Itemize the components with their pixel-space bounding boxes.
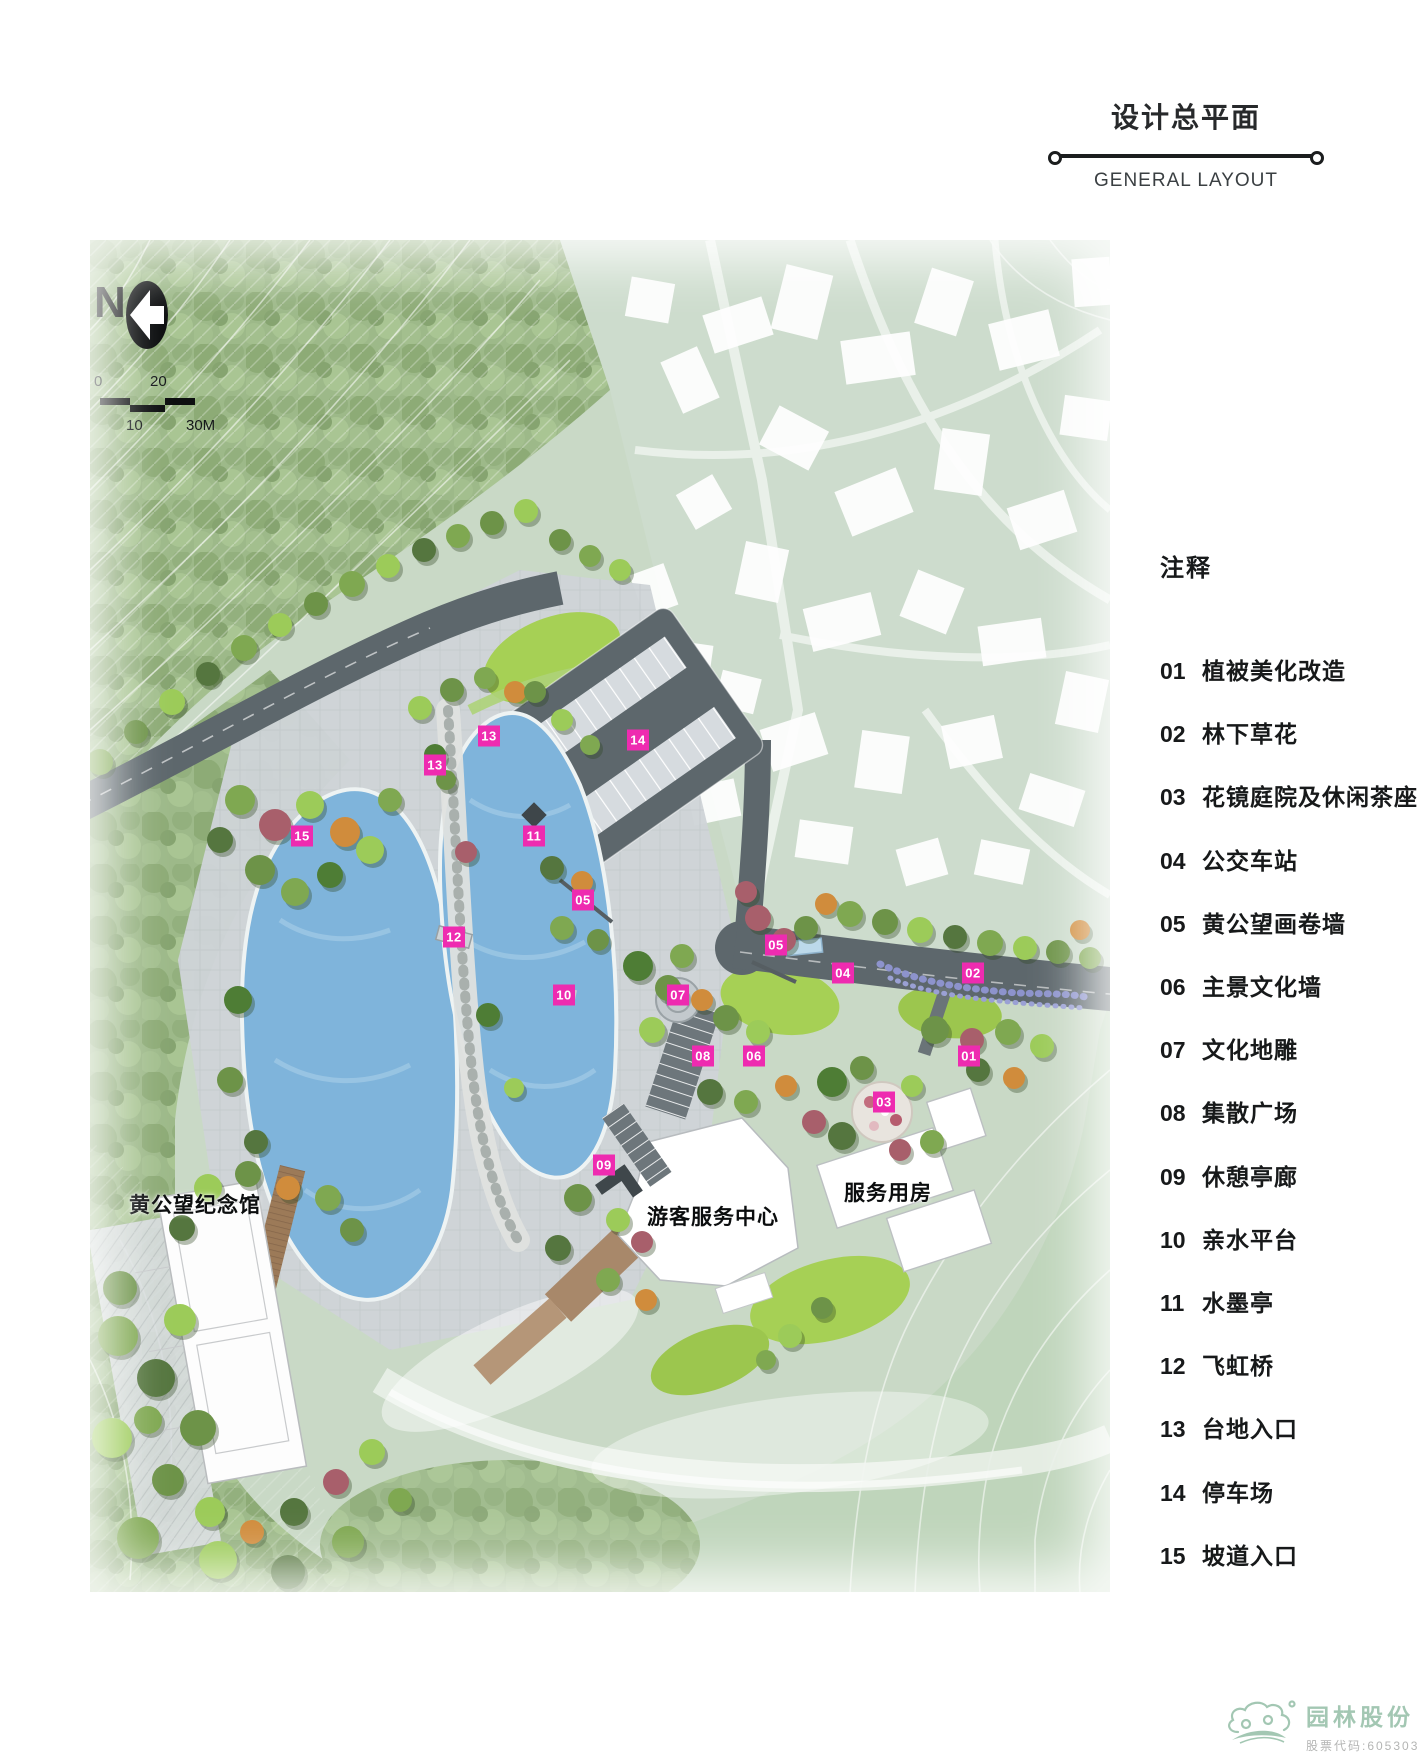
rule-right-ring-icon — [1310, 151, 1324, 165]
legend-item-number: 03 — [1160, 784, 1202, 811]
legend-heading: 注释 — [1160, 548, 1410, 583]
legend-item-number: 06 — [1160, 974, 1202, 1001]
legend-item-08: 08集散广场 — [1160, 1094, 1298, 1128]
legend-item-13: 13台地入口 — [1160, 1410, 1298, 1444]
legend-item-label: 集散广场 — [1202, 1094, 1298, 1128]
plan-marker-14: 14 — [627, 730, 649, 751]
legend-item-number: 05 — [1160, 911, 1202, 938]
plan-marker-07: 07 — [667, 985, 689, 1006]
plan-marker-05: 05 — [572, 890, 594, 911]
legend-item-number: 07 — [1160, 1037, 1202, 1064]
scale-label-10: 10 — [126, 417, 143, 434]
plan-marker-02: 02 — [962, 963, 984, 984]
legend-item-number: 04 — [1160, 848, 1202, 875]
legend-item-label: 黄公望画卷墙 — [1202, 905, 1346, 939]
legend-item-number: 10 — [1160, 1227, 1202, 1254]
legend-item-12: 12飞虹桥 — [1160, 1347, 1274, 1381]
plan-marker-08: 08 — [692, 1046, 714, 1067]
legend-item-06: 06主景文化墙 — [1160, 968, 1322, 1002]
company-name: 园林股份 — [1306, 1698, 1419, 1732]
legend-item-number: 15 — [1160, 1543, 1202, 1570]
scale-label-20: 20 — [150, 373, 167, 390]
legend-item-number: 01 — [1160, 658, 1202, 685]
page-title: 设计总平面 — [1048, 96, 1324, 136]
plan-marker-11: 11 — [523, 826, 545, 847]
place-label: 黄公望纪念馆 — [129, 1189, 261, 1219]
legend-item-number: 12 — [1160, 1353, 1202, 1380]
plan-marker-10: 10 — [553, 985, 575, 1006]
page-header: 设计总平面 GENERAL LAYOUT — [1048, 96, 1324, 192]
legend-item-number: 02 — [1160, 721, 1202, 748]
legend-item-10: 10亲水平台 — [1160, 1221, 1298, 1255]
rule-bar — [1060, 154, 1312, 158]
legend-item-label: 花镜庭院及休闲茶座 — [1202, 778, 1418, 812]
legend-item-07: 07文化地雕 — [1160, 1031, 1298, 1065]
legend-item-label: 植被美化改造 — [1202, 652, 1346, 686]
plan-marker-05: 05 — [765, 935, 787, 956]
company-logo: 园林股份 股票代码:605303 — [1224, 1698, 1419, 1754]
legend-item-15: 15坡道入口 — [1160, 1537, 1298, 1571]
legend-item-02: 02林下草花 — [1160, 715, 1298, 749]
plan-marker-06: 06 — [743, 1046, 765, 1067]
legend-item-label: 公交车站 — [1202, 842, 1298, 876]
legend-item-11: 11水墨亭 — [1160, 1284, 1274, 1318]
plan-marker-09: 09 — [593, 1155, 615, 1176]
legend-item-label: 台地入口 — [1202, 1410, 1298, 1444]
plan-marker-13: 13 — [424, 755, 446, 776]
place-label: 服务用房 — [844, 1177, 932, 1207]
title-rule — [1048, 150, 1324, 162]
plan-marker-03: 03 — [873, 1092, 895, 1113]
plan-marker-04: 04 — [832, 963, 854, 984]
plan-marker-13: 13 — [478, 726, 500, 747]
plan-marker-12: 12 — [443, 927, 465, 948]
scale-label-0: 0 — [94, 373, 102, 390]
site-plan-graphic — [90, 240, 1110, 1592]
plan-marker-15: 15 — [291, 826, 313, 847]
legend-item-number: 09 — [1160, 1164, 1202, 1191]
legend-item-label: 主景文化墙 — [1202, 968, 1322, 1002]
legend-item-14: 14停车场 — [1160, 1474, 1274, 1508]
legend-item-number: 13 — [1160, 1416, 1202, 1443]
scale-bar-seg1 — [100, 398, 130, 405]
legend-item-04: 04公交车站 — [1160, 842, 1298, 876]
plan-marker-01: 01 — [958, 1046, 980, 1067]
legend-item-label: 飞虹桥 — [1202, 1347, 1274, 1381]
page-subtitle: GENERAL LAYOUT — [1048, 170, 1324, 192]
scale-bar-seg2 — [130, 405, 165, 412]
legend-item-label: 休憩亭廊 — [1202, 1158, 1298, 1192]
legend-item-label: 亲水平台 — [1202, 1221, 1298, 1255]
legend-item-label: 坡道入口 — [1202, 1537, 1298, 1571]
cloud-logo-icon — [1224, 1698, 1300, 1748]
legend-item-number: 14 — [1160, 1480, 1202, 1507]
legend-item-label: 水墨亭 — [1202, 1284, 1274, 1318]
site-plan-map: N 0 20 10 30M 黄公望纪念馆游客服务中心服务用房 131413111… — [90, 240, 1110, 1592]
scale-bar-seg3 — [165, 398, 195, 405]
legend-item-05: 05黄公望画卷墙 — [1160, 905, 1346, 939]
legend-item-label: 林下草花 — [1202, 715, 1298, 749]
place-label: 游客服务中心 — [647, 1201, 779, 1231]
legend-item-03: 03花镜庭院及休闲茶座 — [1160, 778, 1418, 812]
legend-item-01: 01植被美化改造 — [1160, 652, 1346, 686]
legend-item-number: 11 — [1160, 1290, 1202, 1317]
legend-item-number: 08 — [1160, 1100, 1202, 1127]
stock-code: 股票代码:605303 — [1306, 1737, 1419, 1754]
legend: 注释 01植被美化改造02林下草花03花镜庭院及休闲茶座04公交车站05黄公望画… — [1160, 548, 1410, 583]
legend-item-09: 09休憩亭廊 — [1160, 1158, 1298, 1192]
scale-label-30m: 30M — [186, 417, 215, 434]
north-label: N — [94, 278, 126, 328]
legend-item-label: 停车场 — [1202, 1474, 1274, 1508]
design-layout-page: 设计总平面 GENERAL LAYOUT — [0, 0, 1424, 1754]
north-arrow-icon — [126, 281, 168, 349]
legend-item-label: 文化地雕 — [1202, 1031, 1298, 1065]
